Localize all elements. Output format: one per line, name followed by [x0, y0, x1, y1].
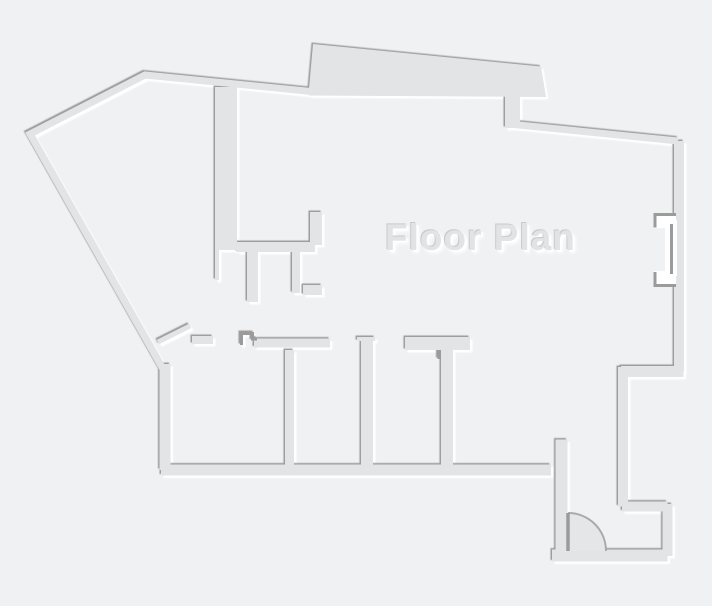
upper-room-top-wall [237, 242, 315, 252]
upper-room-stub-l [303, 285, 322, 295]
top-right-sloped-wall [509, 124, 678, 141]
walls-layer [30, 44, 684, 556]
upper-room-wall-b [292, 252, 300, 293]
partition-left [285, 350, 294, 466]
outer-wall-left-and-top [30, 75, 311, 369]
upper-room-stub-up [310, 212, 322, 245]
top-bump-wall [309, 44, 546, 97]
partition-right-bar [405, 337, 470, 350]
entry-door-swing [568, 513, 606, 551]
floor-plan-stage: Floor Plan [0, 0, 712, 606]
window-details-layer [654, 215, 677, 288]
door-leaf-left [158, 326, 190, 342]
floor-plan-drawing [0, 0, 712, 606]
interior-thick-wall [215, 87, 237, 250]
partition-right [441, 350, 453, 467]
partition-mid [361, 340, 373, 467]
upper-room-stub-a [247, 252, 258, 302]
